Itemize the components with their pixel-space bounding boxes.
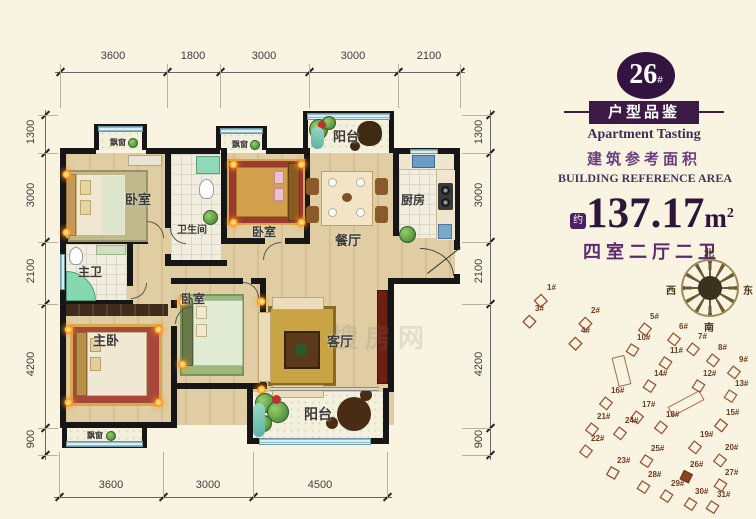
layout-desc: 四室二厅二卫	[552, 238, 752, 264]
window-glass	[220, 128, 263, 134]
pillow-icon	[196, 324, 207, 337]
site-building	[654, 420, 668, 434]
shower-icon	[196, 156, 220, 174]
title-box: 户型品鉴	[589, 101, 699, 124]
dim-ext-line	[398, 64, 399, 108]
dim-label-right-4: 900	[473, 411, 485, 467]
dim-ext-line	[220, 64, 221, 108]
dim-label-right-2: 2100	[473, 243, 485, 299]
dim-ext-line	[38, 115, 58, 116]
title-line-left	[564, 111, 589, 113]
dresser-icon	[128, 155, 162, 166]
site-building-label: 13#	[735, 379, 748, 388]
site-building-label: 31#	[717, 490, 730, 499]
dim-line-top	[55, 72, 465, 73]
site-building	[659, 356, 673, 370]
site-building-label: 3#	[535, 304, 544, 313]
wall	[165, 148, 171, 228]
dim-ext-line	[167, 64, 168, 108]
dim-ext-line	[253, 452, 254, 498]
lamp-icon	[178, 360, 187, 369]
bed-headboard-icon	[66, 174, 76, 236]
wall	[369, 438, 389, 444]
dim-label-right-0: 1300	[473, 104, 485, 160]
site-building	[613, 426, 627, 440]
lamp-icon	[154, 398, 163, 407]
site-building-label: 9#	[739, 355, 748, 364]
site-building-label: 24#	[625, 416, 638, 425]
site-building-label: 27#	[725, 468, 738, 477]
room-label-balcony-top: 阳台	[316, 126, 376, 145]
wall	[388, 278, 460, 284]
site-plan: 1#2#3#4#5#6#7#8#9#10#11#12#13#14#15#16#1…	[505, 280, 756, 519]
title-line-right	[699, 111, 724, 113]
dim-ext-line	[460, 64, 461, 108]
dim-ext-line	[309, 64, 310, 108]
dim-label-left-0: 1300	[25, 104, 37, 160]
room-label-bay-window-3: 飘窗	[75, 430, 115, 441]
lamp-icon	[62, 228, 71, 237]
site-building	[626, 343, 640, 357]
site-building-label: 29#	[671, 479, 684, 488]
dim-label-left-1: 3000	[25, 167, 37, 223]
pillow-icon	[80, 180, 91, 195]
dim-ext-line	[38, 304, 58, 305]
sliding-door-icon	[270, 387, 378, 391]
lamp-icon	[257, 297, 266, 306]
dim-label-top-4: 2100	[399, 50, 459, 62]
dim-label-bottom-2: 4500	[290, 479, 350, 491]
dim-label-left-3: 4200	[25, 336, 37, 392]
area-label-en: BUILDING REFERENCE AREA	[540, 171, 750, 186]
site-building-label: 15#	[726, 408, 739, 417]
room-label-master-bath: 主卫	[60, 263, 120, 280]
dim-label-top-0: 3600	[83, 50, 143, 62]
wall	[165, 260, 227, 266]
decor-icon	[295, 344, 307, 356]
dim-label-top-2: 3000	[234, 50, 294, 62]
watermark: 搜房网	[332, 318, 431, 355]
site-building-label: 11#	[670, 346, 683, 355]
dim-ext-line	[387, 452, 388, 498]
window-glass	[98, 126, 143, 132]
room-label-bay-window-1: 飘窗	[98, 137, 138, 148]
site-building	[643, 379, 657, 393]
dim-line-left	[45, 110, 46, 460]
site-building	[579, 444, 593, 458]
dim-ext-line	[59, 452, 60, 498]
dim-label-bottom-0: 3600	[81, 479, 141, 491]
site-building-label: 22#	[591, 434, 604, 443]
site-building-label: 28#	[648, 470, 661, 479]
site-building	[688, 440, 702, 454]
pillow-icon	[274, 171, 284, 184]
compass-north: 北	[704, 245, 714, 260]
appliance-icon	[438, 224, 452, 239]
site-building	[522, 315, 536, 329]
counter-icon	[96, 245, 126, 255]
site-building	[727, 365, 741, 379]
toilet-icon	[199, 179, 214, 199]
window-glass	[66, 441, 143, 447]
room-label-bedroom-tc: 卧室	[234, 223, 294, 240]
sink-icon	[412, 155, 435, 168]
room-label-bedroom-bc: 卧室	[163, 290, 223, 307]
pillow-icon	[90, 357, 101, 371]
area-unit: m2	[704, 196, 734, 236]
site-building-label: 21#	[597, 412, 610, 421]
site-building-label: 23#	[617, 456, 630, 465]
wall	[146, 148, 220, 154]
bowl-icon	[342, 193, 352, 202]
room-label-dining: 餐厅	[318, 230, 378, 249]
lamp-icon	[64, 398, 73, 407]
lamp-icon	[297, 160, 306, 169]
chair-icon	[306, 178, 319, 195]
building-badge: 26#	[617, 52, 675, 99]
dim-label-right-3: 4200	[473, 336, 485, 392]
dim-label-right-1: 3000	[473, 167, 485, 223]
site-building-label: 7#	[698, 332, 707, 341]
room-label-kitchen: 厨房	[383, 191, 443, 208]
site-building-label: 16#	[611, 386, 624, 395]
building-number: 26	[629, 59, 657, 90]
site-building-label: 2#	[591, 306, 600, 315]
site-building-label: 5#	[650, 312, 659, 321]
plate-icon	[356, 208, 365, 217]
dim-line-bottom	[54, 497, 392, 498]
site-building-label: 17#	[642, 400, 655, 409]
site-building-label: 1#	[547, 283, 556, 292]
lamp-icon	[154, 325, 163, 334]
plate-icon	[328, 208, 337, 217]
dim-label-top-3: 3000	[323, 50, 383, 62]
site-building	[724, 389, 738, 403]
site-building	[706, 353, 720, 367]
dim-label-left-2: 2100	[25, 243, 37, 299]
title-cn: 户型品鉴	[608, 104, 680, 121]
room-label-bay-window-2: 飘窗	[220, 139, 260, 150]
site-building-label: 20#	[725, 443, 738, 452]
wall	[171, 326, 177, 423]
site-building	[660, 489, 674, 503]
site-building-label: 19#	[700, 430, 713, 439]
area-prefix-badge: 约	[570, 213, 586, 229]
dim-ext-line	[462, 304, 492, 305]
path-icon	[253, 403, 265, 437]
room-label-bathroom: 卫生间	[157, 221, 227, 236]
wall	[60, 422, 177, 428]
title-en: Apartment Tasting	[559, 127, 729, 143]
building-number-suffix: #	[657, 75, 663, 86]
site-building-label: 25#	[651, 444, 664, 453]
dim-line-right	[490, 110, 491, 460]
chair-icon	[306, 206, 319, 223]
site-building-label: 8#	[718, 343, 727, 352]
wall	[171, 278, 243, 284]
site-building-label: 26#	[690, 460, 703, 469]
site-building	[667, 332, 681, 346]
site-building	[599, 396, 613, 410]
site-building-label: 14#	[654, 369, 667, 378]
area-row: 约 137.17 m2	[552, 188, 752, 236]
site-building-label: 4#	[581, 326, 590, 335]
dim-ext-line	[38, 455, 58, 456]
lamp-icon	[62, 170, 71, 179]
site-building	[706, 500, 720, 514]
site-building	[714, 418, 728, 432]
site-building	[686, 342, 700, 356]
plate-icon	[356, 178, 365, 187]
sofa-icon	[258, 312, 271, 382]
flower-icon	[272, 395, 281, 404]
dim-label-bottom-1: 3000	[178, 479, 238, 491]
pillow-icon	[196, 306, 207, 319]
pillow-icon	[274, 188, 284, 201]
plant-icon	[399, 226, 416, 243]
site-building	[640, 454, 654, 468]
site-building-label: 12#	[703, 369, 716, 378]
dim-ext-line	[38, 242, 58, 243]
site-building-label: 30#	[695, 487, 708, 496]
site-building	[684, 497, 698, 511]
lamp-icon	[229, 160, 238, 169]
dim-ext-line	[38, 153, 58, 154]
site-building	[606, 466, 620, 480]
site-road	[612, 355, 632, 387]
site-building	[692, 379, 706, 393]
room-label-bedroom-tl: 卧室	[108, 189, 168, 208]
wall	[127, 244, 133, 286]
pillow-icon	[80, 200, 91, 215]
area-label-cn: 建筑参考面积	[559, 148, 729, 169]
wall	[383, 388, 389, 444]
site-building-label: 18#	[666, 410, 679, 419]
plate-icon	[328, 178, 337, 187]
dim-ext-line	[163, 452, 164, 498]
dim-ext-line	[38, 428, 58, 429]
lamp-icon	[64, 325, 73, 334]
site-building	[568, 337, 582, 351]
bed-headboard-icon	[288, 163, 300, 221]
window-glass	[259, 438, 371, 445]
dim-label-left-4: 900	[25, 411, 37, 467]
site-building-label: 6#	[679, 322, 688, 331]
lamp-icon	[297, 218, 306, 227]
room-label-balcony-bottom: 阳台	[288, 404, 348, 424]
site-building	[713, 453, 727, 467]
room-label-master-bedroom: 主卧	[76, 330, 136, 349]
dim-label-top-1: 1800	[163, 50, 223, 62]
chair-icon	[375, 206, 388, 223]
site-building-label: 10#	[637, 333, 650, 342]
floorplan-page: 3600180030003000210036003000450013003000…	[0, 0, 756, 519]
sofa-icon	[272, 297, 324, 310]
area-value: 137.17	[586, 192, 704, 236]
site-building	[637, 480, 651, 494]
wardrobe-icon	[66, 304, 168, 316]
dim-ext-line	[60, 64, 61, 108]
